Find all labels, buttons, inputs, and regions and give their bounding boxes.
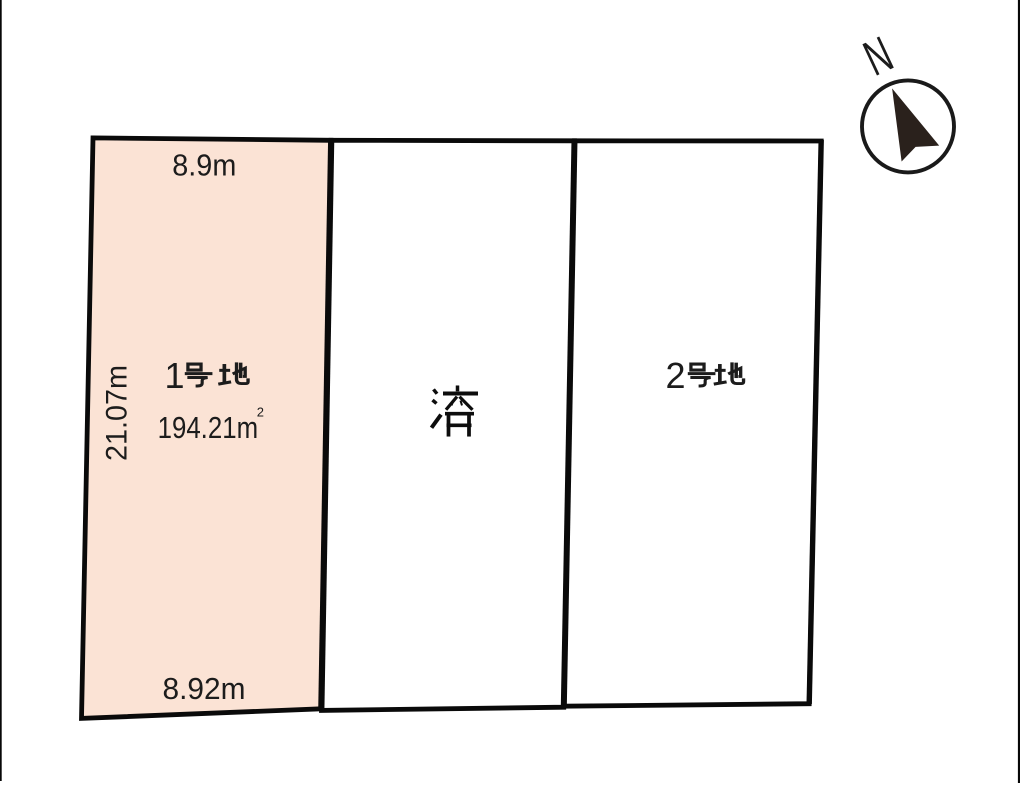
svg-text:194.21m: 194.21m bbox=[158, 410, 259, 445]
svg-text:1: 1 bbox=[164, 355, 184, 396]
svg-text:N: N bbox=[856, 26, 901, 87]
svg-text:21.07m: 21.07m bbox=[101, 365, 134, 461]
svg-text:8.92m: 8.92m bbox=[163, 671, 246, 706]
svg-text:2: 2 bbox=[257, 404, 264, 419]
svg-text:8.9m: 8.9m bbox=[172, 148, 236, 183]
svg-text:2: 2 bbox=[665, 355, 685, 396]
